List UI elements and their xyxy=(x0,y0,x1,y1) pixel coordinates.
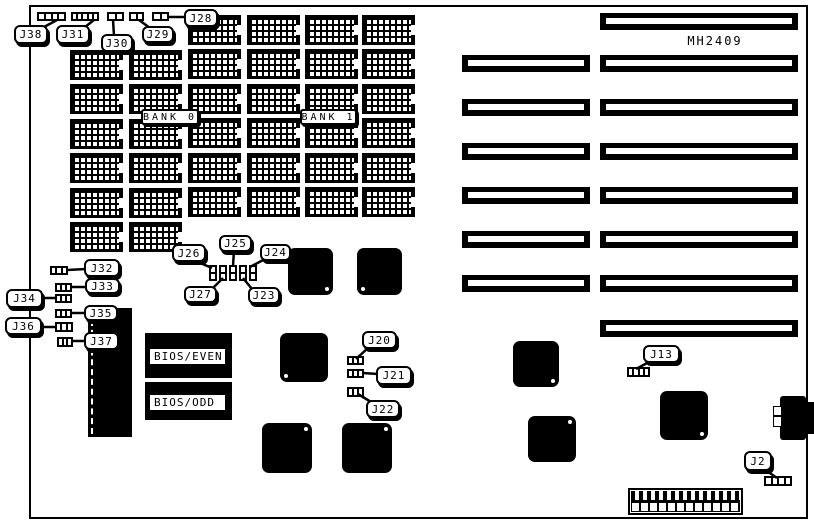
expansion-slot-short xyxy=(462,55,590,72)
jumper-block-j22 xyxy=(347,387,364,397)
callout-j2: J2 xyxy=(744,451,772,471)
callout-j20: J20 xyxy=(362,331,397,349)
memory-chip xyxy=(247,153,300,183)
power-connector-pins xyxy=(631,491,740,502)
keyboard-connector-tab xyxy=(804,402,814,434)
callout-j26: J26 xyxy=(172,244,206,262)
jumper-block-j29 xyxy=(129,12,144,21)
callout-j21: J21 xyxy=(376,366,412,385)
jumper-block-j28 xyxy=(152,12,169,21)
memory-chip xyxy=(247,15,300,45)
expansion-slot-short xyxy=(462,275,590,292)
expansion-slot-long xyxy=(600,231,798,248)
callout-j35: J35 xyxy=(84,305,118,321)
expansion-slot-long xyxy=(600,13,798,30)
bios-even-label: BIOS/EVEN xyxy=(148,347,227,366)
memory-chip xyxy=(70,153,123,183)
callout-j24: J24 xyxy=(260,244,291,261)
callout-j27: J27 xyxy=(184,286,217,303)
board-model-text: MH2409 xyxy=(660,34,770,48)
memory-chip xyxy=(70,188,123,218)
memory-chip xyxy=(70,50,123,80)
memory-chip xyxy=(188,153,241,183)
memory-chip xyxy=(129,50,182,80)
board-outline xyxy=(29,5,808,519)
memory-chip xyxy=(247,84,300,114)
bios-odd-label: BIOS/ODD xyxy=(148,393,227,412)
memory-chip xyxy=(305,153,358,183)
jumper-block-j27 xyxy=(219,265,227,281)
pin1-dot xyxy=(700,432,704,436)
memory-chip xyxy=(70,84,123,114)
expansion-slot-long xyxy=(600,320,798,337)
expansion-slot-long xyxy=(600,187,798,204)
memory-chip xyxy=(305,15,358,45)
memory-chip xyxy=(188,49,241,79)
power-connector-holes xyxy=(631,502,740,512)
pin1-dot xyxy=(361,287,365,291)
callout-j38: J38 xyxy=(14,25,48,44)
jumper-block-j38 xyxy=(37,12,66,21)
jumper-block-j33 xyxy=(55,283,72,292)
pin1-dot xyxy=(551,379,555,383)
pin1-dot xyxy=(325,287,329,291)
memory-chip xyxy=(247,49,300,79)
callout-j31: J31 xyxy=(56,25,90,44)
power-connector xyxy=(628,488,743,515)
callout-j34: J34 xyxy=(6,289,43,308)
memory-chip xyxy=(362,187,415,217)
memory-chip xyxy=(247,118,300,148)
callout-j23: J23 xyxy=(248,287,280,304)
motherboard-diagram: MH2409 BIOS/EVEN BIOS/ODD xyxy=(0,0,814,528)
memory-chip xyxy=(188,187,241,217)
qfp-chip xyxy=(280,333,328,382)
memory-chip xyxy=(129,188,182,218)
jumper-block-j23 xyxy=(239,265,247,281)
jumper-block-j31 xyxy=(71,12,99,21)
callout-j13: J13 xyxy=(643,345,680,363)
memory-chip xyxy=(362,84,415,114)
keyboard-connector-notch xyxy=(773,406,782,416)
expansion-slot-short xyxy=(462,99,590,116)
callout-j29: J29 xyxy=(142,26,174,43)
eprom-chip xyxy=(88,308,132,437)
jumper-block-j2 xyxy=(764,476,792,486)
jumper-block-j26 xyxy=(209,265,217,281)
pin1-dot xyxy=(568,420,572,424)
memory-chip xyxy=(305,49,358,79)
callout-j30: J30 xyxy=(101,34,133,52)
jumper-block-j24 xyxy=(249,265,257,281)
keyboard-connector-notch xyxy=(773,416,782,427)
memory-chip xyxy=(362,153,415,183)
memory-chip xyxy=(362,118,415,148)
memory-chip xyxy=(305,187,358,217)
callout-j33: J33 xyxy=(85,278,120,294)
expansion-slot-short xyxy=(462,143,590,160)
callout-j32: J32 xyxy=(84,259,120,277)
expansion-slot-short xyxy=(462,231,590,248)
callout-j28: J28 xyxy=(184,9,218,27)
pin1-dot xyxy=(384,427,388,431)
expansion-slot-long xyxy=(600,99,798,116)
qfp-chip xyxy=(342,423,392,473)
jumper-block-j32 xyxy=(50,266,68,275)
memory-chip xyxy=(362,15,415,45)
qfp-chip xyxy=(513,341,559,387)
jumper-block-j21 xyxy=(347,369,364,378)
expansion-slot-long xyxy=(600,55,798,72)
memory-chip xyxy=(362,49,415,79)
expansion-slot-long xyxy=(600,143,798,160)
memory-chip xyxy=(70,119,123,149)
memory-chip xyxy=(247,187,300,217)
bank1-label: BANK 1 xyxy=(300,109,357,125)
memory-chip xyxy=(129,153,182,183)
qfp-chip xyxy=(357,248,402,295)
qfp-chip xyxy=(660,391,708,440)
jumper-block-j30 xyxy=(107,12,124,21)
jumper-block-j37 xyxy=(57,337,73,347)
pin1-dot xyxy=(284,374,288,378)
jumper-block-j34 xyxy=(55,294,72,303)
jumper-block-j25 xyxy=(229,265,237,281)
expansion-slot-short xyxy=(462,187,590,204)
qfp-chip xyxy=(288,248,333,295)
qfp-chip xyxy=(528,416,576,462)
bank0-label: BANK 0 xyxy=(141,109,199,125)
keyboard-connector xyxy=(780,396,806,440)
jumper-block-j36 xyxy=(55,322,73,332)
callout-j22: J22 xyxy=(366,400,400,418)
jumper-block-j35 xyxy=(55,309,72,318)
qfp-chip xyxy=(262,423,312,473)
memory-chip xyxy=(70,222,123,252)
callout-j25: J25 xyxy=(219,235,252,252)
pin1-dot xyxy=(304,427,308,431)
jumper-block-j20 xyxy=(347,356,364,365)
callout-j37: J37 xyxy=(84,332,119,350)
jumper-block-j13 xyxy=(627,367,650,377)
callout-j36: J36 xyxy=(5,317,42,335)
expansion-slot-long xyxy=(600,275,798,292)
